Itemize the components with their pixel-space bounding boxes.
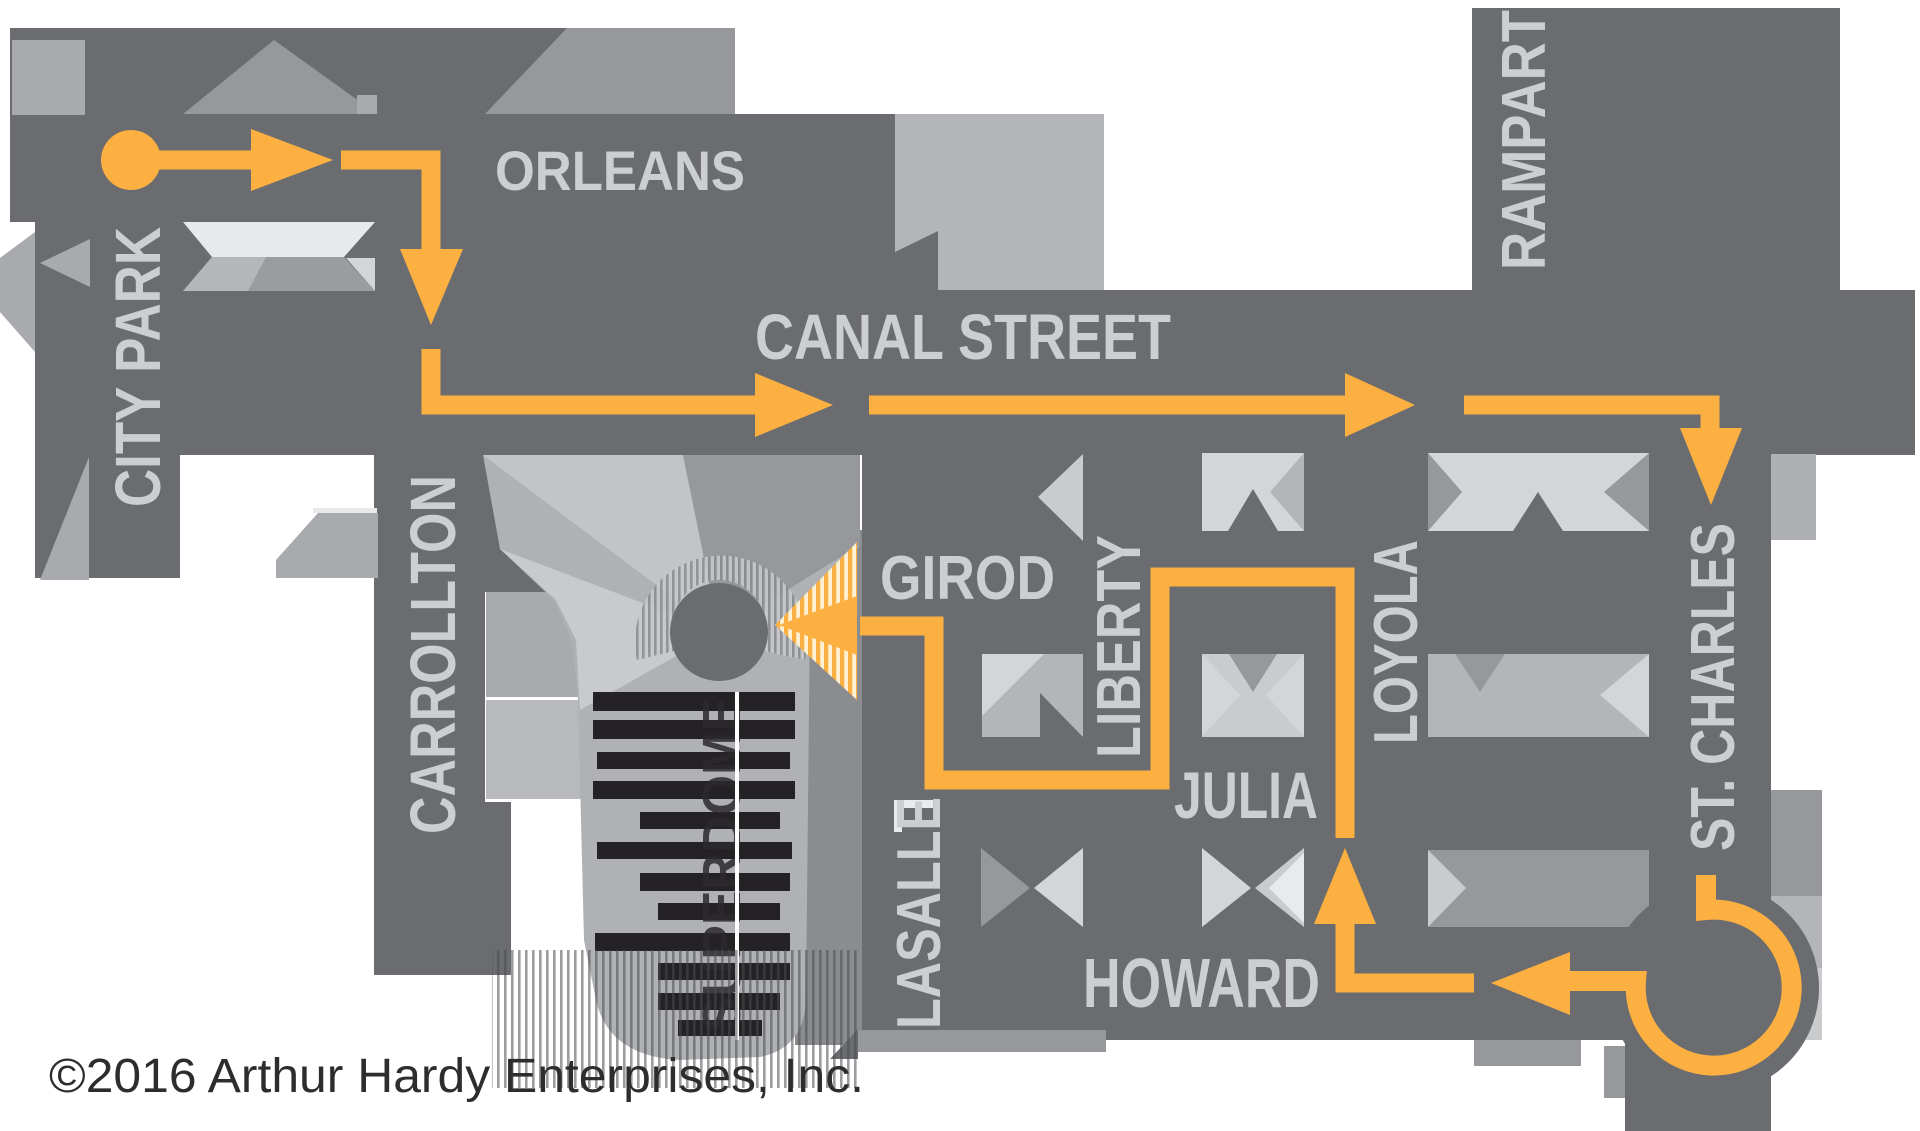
svg-text:LOYOLA: LOYOLA: [1362, 540, 1431, 744]
svg-text:ST. CHARLES: ST. CHARLES: [1679, 523, 1748, 851]
svg-text:JULIA: JULIA: [1174, 758, 1318, 832]
svg-text:RAMPART: RAMPART: [1490, 10, 1559, 270]
svg-text:ORLEANS: ORLEANS: [495, 139, 745, 202]
svg-text:CANAL STREET: CANAL STREET: [755, 301, 1171, 373]
svg-text:CARROLLTON: CARROLLTON: [397, 475, 469, 834]
svg-text:LASALLE: LASALLE: [885, 797, 954, 1029]
svg-text:©2016 Arthur Hardy Enterprises: ©2016 Arthur Hardy Enterprises, Inc.: [49, 1050, 864, 1103]
svg-text:CITY PARK: CITY PARK: [102, 227, 174, 507]
svg-text:GIROD: GIROD: [880, 544, 1055, 613]
svg-text:LIBERTY: LIBERTY: [1085, 535, 1154, 758]
svg-text:HOWARD: HOWARD: [1083, 944, 1320, 1022]
